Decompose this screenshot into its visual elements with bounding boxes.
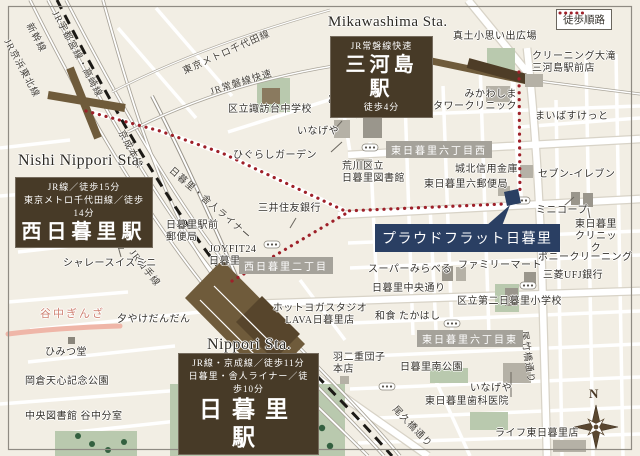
- nippori-name: 日暮里駅: [184, 396, 313, 451]
- poi-pony-cleaning: ポニークリーニング: [538, 252, 633, 264]
- poi-seven-eleven: セブン-イレブン: [538, 169, 615, 181]
- poi-inageya-north: いなげや: [297, 126, 339, 138]
- nishi-nippori-line1: JR線／徒歩15分: [21, 181, 147, 194]
- poi-habutae-dango: 羽二重団子 本店: [333, 352, 386, 376]
- poi-life-supermarket: ライフ東日暮里店: [495, 428, 579, 440]
- poi-lava-yoga: ホットヨガスタジオ LAVA日暮里店: [272, 303, 368, 327]
- poi-masuchi-plaza: 真土小思い出広場: [453, 31, 537, 43]
- district-higashi6-west: 東日暮里六丁目西: [386, 141, 492, 158]
- district-higashi6-east: 東日暮里六丁目東: [417, 330, 523, 347]
- poi-familymart: ファミリーマート: [458, 260, 542, 272]
- poi-chalet-swiss-mini: シャレースイスミニ: [63, 258, 157, 270]
- nippori-en-label: Nippori Sta.: [207, 336, 291, 354]
- road-label-yanaka-ginza: 谷中ぎんざ: [40, 308, 105, 321]
- poi-yuyake-dandan: 夕やけだんだん: [117, 314, 191, 326]
- poi-nippori-library: 荒川区立 日暮里図書館: [342, 161, 405, 185]
- compass-north-label: N: [589, 386, 598, 402]
- poi-nippori-ekimae-post-office: 日暮里駅前 郵便局: [166, 220, 219, 244]
- nishi-nippori-station-box: JR線／徒歩15分 東京メトロ千代田線／徒歩14分 西日暮里駅: [15, 177, 153, 248]
- mikawashima-walk: 徒歩4分: [336, 101, 427, 114]
- poi-higashinippori6-post-office: 東日暮里六郵便局: [424, 179, 508, 191]
- poi-mufg-bank: 三菱UFJ銀行: [543, 270, 603, 282]
- nippori-station-box: JR線・京成線／徒歩11分 日暮里・舎人ライナー／徒歩10分 日暮里駅: [178, 353, 319, 455]
- poi-inageya-south: いなげや: [470, 383, 512, 395]
- poi-mybasket: まいばすけっと: [535, 111, 609, 123]
- poi-higurashi-garden: ひぐらしガーデン: [233, 150, 317, 162]
- district-nishi2: 西日暮里二丁目: [239, 257, 333, 274]
- mikawashima-line: JR常磐線快速: [336, 40, 427, 53]
- poi-washoku-takahashi: 和食 たかはし: [375, 311, 441, 323]
- mikawashima-en-label: Mikawashima Sta.: [328, 14, 448, 31]
- poi-dai2-nippori-elementary: 区立第二日暮里小学校: [457, 296, 562, 308]
- nippori-line2: 日暮里・舎人ライナー／徒歩10分: [184, 370, 313, 396]
- poi-cleaning-otaki: クリーニング大滝 三河島駅前店: [532, 51, 616, 75]
- access-map: 徒歩順路 Mikawashima Sta. Nishi Nippori Sta.…: [0, 0, 640, 456]
- poi-okakura-tenshin-park: 岡倉天心記念公園: [25, 376, 109, 388]
- mikawashima-name: 三河島駅: [336, 53, 427, 101]
- walking-route-dots-icon: [557, 10, 585, 16]
- nishi-nippori-name: 西日暮里駅: [21, 220, 147, 244]
- nippori-line1: JR線・京成線／徒歩11分: [184, 357, 313, 370]
- road-label-nippori-chuo: 日暮里中央通り: [372, 283, 446, 295]
- poi-suwadai-junior-high: 区立諏訪台中学校: [228, 104, 312, 116]
- nishi-nippori-line2: 東京メトロ千代田線／徒歩14分: [21, 194, 147, 220]
- poi-higashinippori-dental: 東日暮里歯科医院: [425, 396, 509, 408]
- poi-mikawashima-tower-clinic: みかわしま タワークリニック: [425, 89, 517, 113]
- mikawashima-station-box: JR常磐線快速 三河島駅 徒歩4分: [330, 36, 433, 118]
- poi-nippori-minami-park: 日暮里南公園: [400, 362, 463, 374]
- poi-johoku-shinkin-bank: 城北信用金庫: [455, 164, 518, 176]
- nishi-nippori-en-label: Nishi Nippori Sta.: [18, 152, 144, 170]
- poi-central-library-yanaka: 中央図書館 谷中分室: [25, 411, 123, 423]
- property-label: プラウドフラット日暮里: [375, 224, 560, 252]
- poi-himitsudo: ひみつ堂: [45, 347, 87, 359]
- poi-smbc-bank: 三井住友銀行: [258, 203, 321, 215]
- legend-walking-route: 徒歩順路: [556, 9, 612, 30]
- poi-higashinippori-clinic: 東日暮里 クリニック: [570, 219, 622, 255]
- poi-super-miraberu: スーパーみらべる: [368, 264, 452, 276]
- poi-minicoop: ミニコープ: [536, 205, 588, 217]
